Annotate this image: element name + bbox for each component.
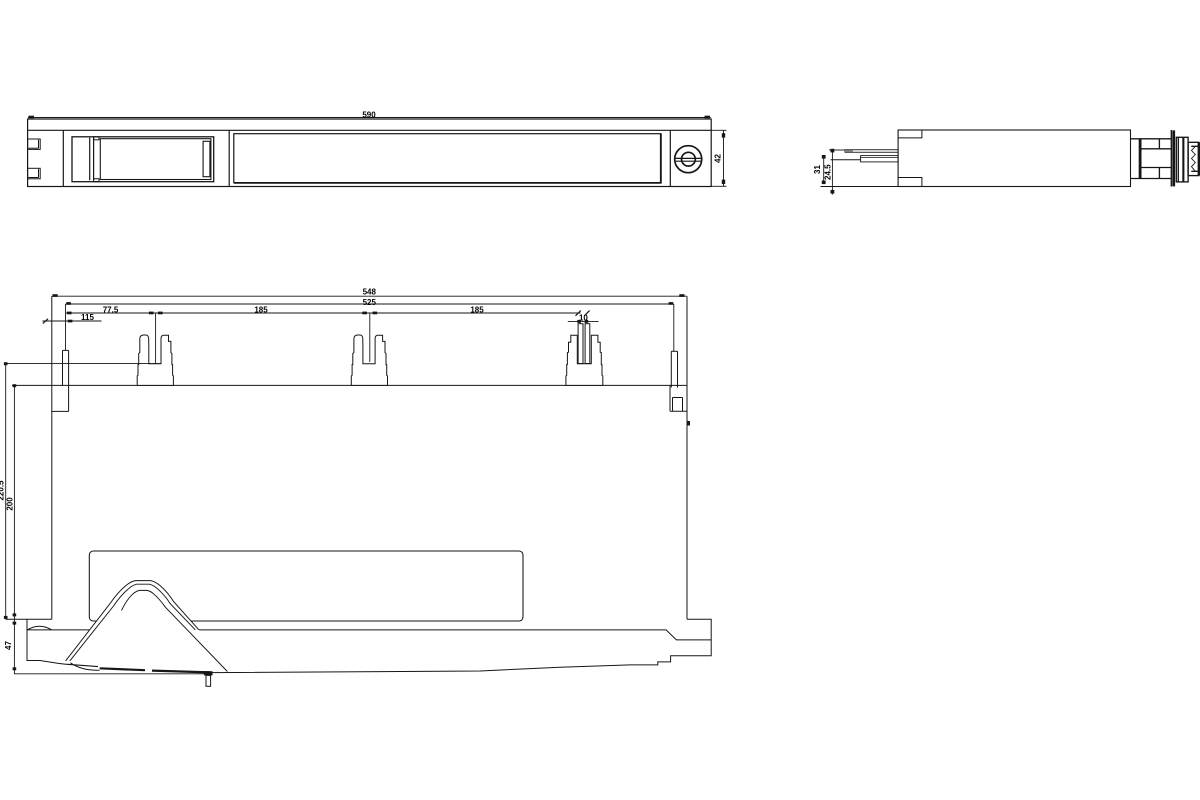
svg-text:77.5: 77.5 (103, 305, 119, 314)
svg-text:185: 185 (470, 305, 484, 314)
svg-text:47: 47 (4, 641, 13, 650)
svg-text:548: 548 (363, 288, 377, 297)
svg-text:31: 31 (813, 165, 822, 174)
svg-text:24.5: 24.5 (824, 164, 833, 180)
svg-text:115: 115 (81, 313, 94, 322)
svg-text:590: 590 (362, 110, 376, 119)
svg-text:185: 185 (254, 305, 268, 314)
svg-text:525: 525 (363, 298, 377, 307)
svg-text:200: 200 (5, 497, 14, 511)
svg-text:10: 10 (579, 313, 588, 322)
svg-text:42: 42 (714, 154, 723, 163)
